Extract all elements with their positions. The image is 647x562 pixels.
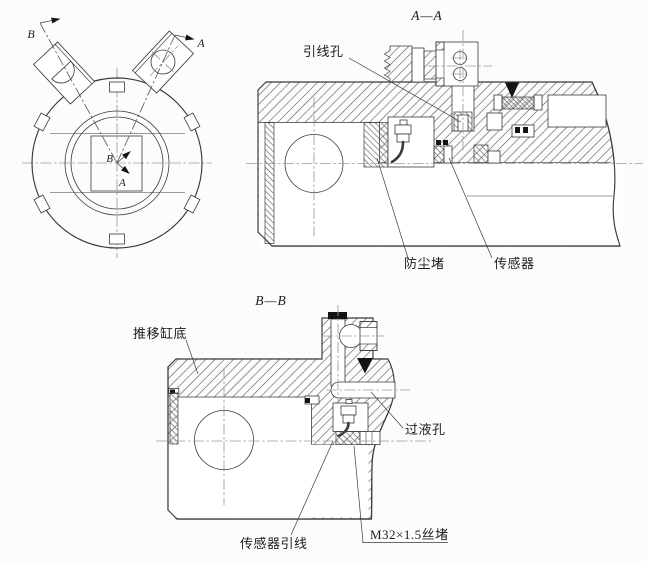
- bb-seal-notch: [305, 396, 319, 404]
- bb-label-cylinder-bottom: 推移缸底: [133, 326, 187, 341]
- aa-dust-plug: [364, 123, 388, 168]
- bb-title: B—B: [255, 293, 287, 308]
- section-aa: A—A 引线孔 防尘堵 传感器: [246, 8, 643, 271]
- bb-label-sensor-lead: 传感器引线: [240, 536, 308, 551]
- bb-cylinder-liner: [169, 389, 179, 445]
- bb-label-liquid-hole: 过液孔: [405, 422, 446, 437]
- aa-title: A—A: [410, 8, 443, 23]
- section-marker-b: B: [27, 27, 35, 41]
- technical-drawing: B A B A: [0, 0, 647, 562]
- aa-label-lead-wire-hole: 引线孔: [303, 44, 344, 59]
- aa-right-cavity: [548, 95, 606, 127]
- aa-gland-boss: [385, 42, 479, 86]
- aa-cylinder-liner: [265, 123, 274, 244]
- section-marker-a: A: [196, 36, 205, 50]
- drawing-canvas: B A B A: [0, 0, 647, 562]
- center-label-a: A: [118, 177, 126, 189]
- left-lug: [34, 42, 95, 104]
- section-bb: B—B 推移缸底 过液孔 传感器引线 M32×1.5丝堵: [133, 293, 449, 551]
- right-lug: [133, 31, 194, 93]
- center-direction-arrows: B A: [106, 149, 133, 189]
- bb-label-screw-plug: M32×1.5丝堵: [370, 527, 449, 542]
- center-slot: [91, 136, 142, 191]
- aa-connector-block: [436, 42, 478, 86]
- aa-label-sensor: 传感器: [494, 256, 535, 271]
- aa-label-dust-plug: 防尘堵: [404, 256, 445, 271]
- bb-screw-plug: [336, 432, 380, 445]
- end-view: B A B A: [22, 16, 212, 258]
- center-label-b: B: [106, 153, 113, 165]
